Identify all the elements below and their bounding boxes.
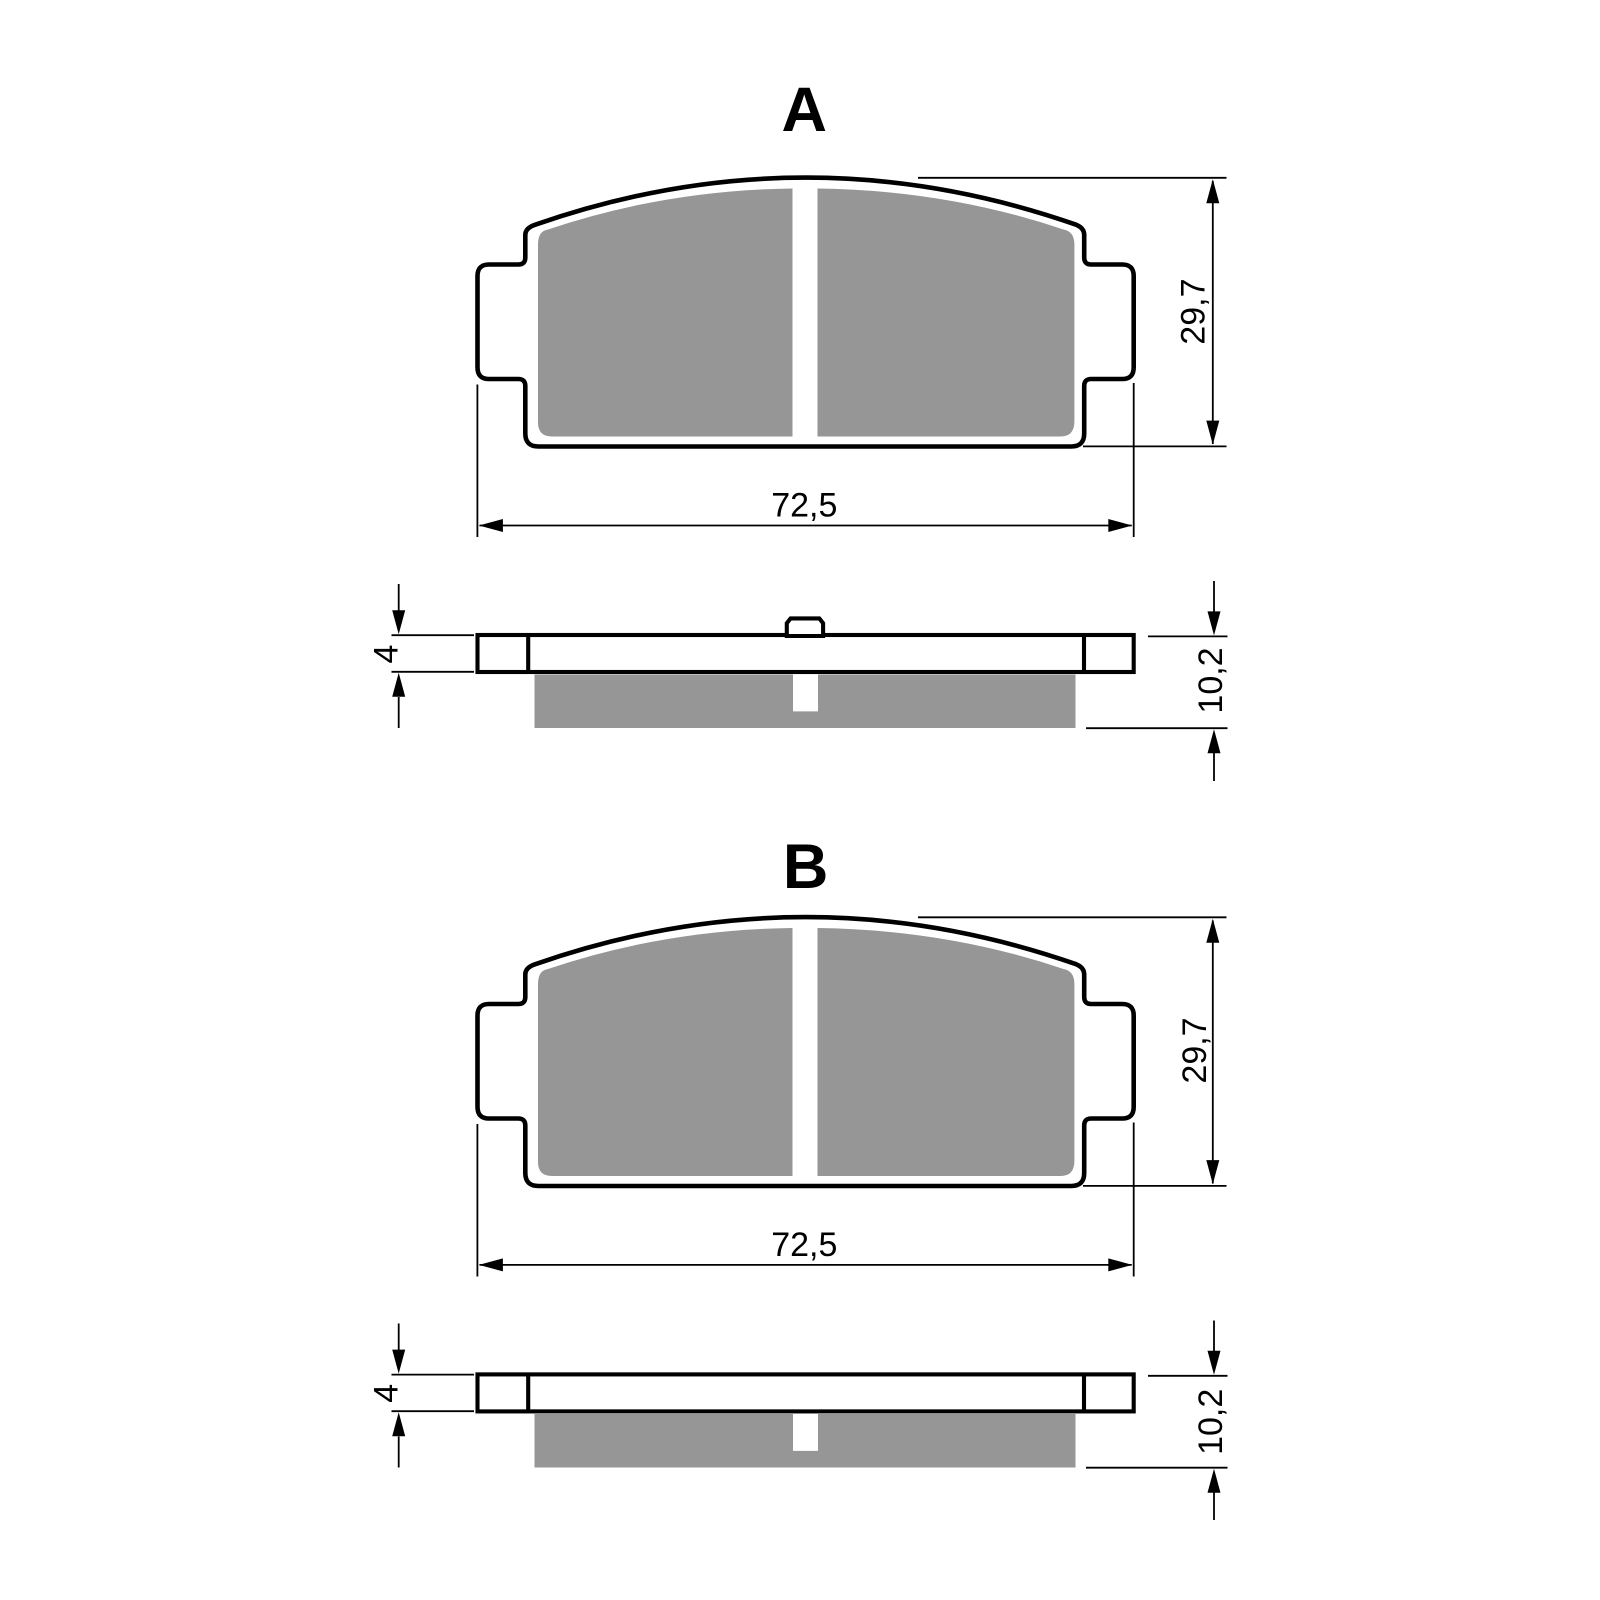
- svg-text:72,5: 72,5: [771, 487, 837, 525]
- svg-text:4: 4: [368, 1384, 406, 1403]
- svg-text:A: A: [782, 75, 828, 145]
- svg-text:4: 4: [368, 645, 406, 664]
- svg-text:29,7: 29,7: [1175, 279, 1213, 345]
- svg-text:10,2: 10,2: [1192, 1389, 1230, 1455]
- svg-text:29,7: 29,7: [1176, 1017, 1214, 1083]
- svg-text:B: B: [783, 832, 829, 902]
- svg-text:10,2: 10,2: [1192, 647, 1230, 713]
- svg-text:72,5: 72,5: [771, 1226, 837, 1264]
